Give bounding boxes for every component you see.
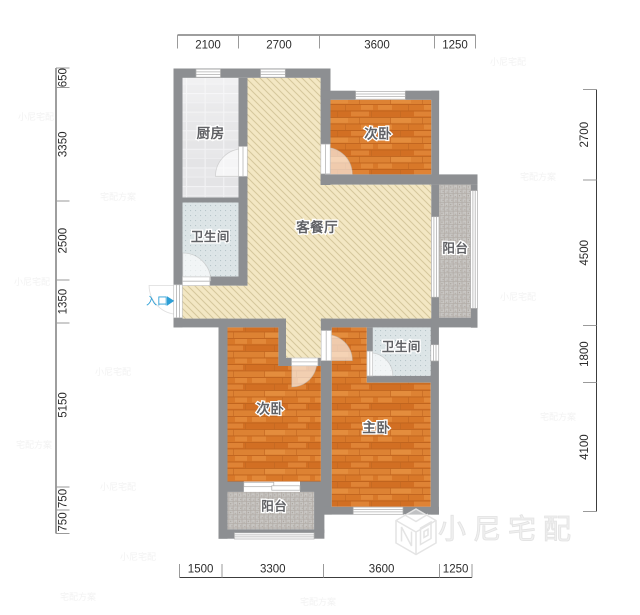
svg-text:小尼宅配: 小尼宅配 [100, 481, 136, 492]
svg-text:3300: 3300 [260, 564, 286, 576]
svg-text:2500: 2500 [58, 228, 70, 254]
svg-text:2100: 2100 [195, 40, 221, 52]
svg-text:小尼宅配: 小尼宅配 [18, 111, 54, 122]
svg-text:3600: 3600 [364, 40, 390, 52]
svg-text:宅配方案: 宅配方案 [300, 596, 336, 607]
svg-text:3350: 3350 [58, 132, 70, 158]
svg-text:小尼宅配: 小尼宅配 [438, 514, 578, 545]
svg-text:宅配方案: 宅配方案 [520, 171, 556, 182]
svg-text:卫生间: 卫生间 [382, 339, 421, 354]
svg-text:宅配方案: 宅配方案 [60, 591, 96, 602]
svg-text:入口: 入口 [146, 296, 168, 308]
svg-text:阳台: 阳台 [442, 240, 468, 255]
svg-text:厨房: 厨房 [197, 125, 225, 141]
svg-text:1250: 1250 [442, 40, 468, 52]
svg-text:5150: 5150 [58, 392, 70, 418]
svg-text:4100: 4100 [579, 434, 591, 460]
svg-text:宅配方案: 宅配方案 [100, 191, 136, 202]
svg-text:小尼宅配: 小尼宅配 [14, 276, 50, 287]
svg-text:3600: 3600 [369, 564, 395, 576]
svg-text:1500: 1500 [188, 564, 214, 576]
svg-text:1250: 1250 [443, 564, 469, 576]
svg-text:750: 750 [58, 512, 70, 531]
svg-text:1350: 1350 [58, 289, 70, 315]
svg-text:宅配方案: 宅配方案 [540, 411, 576, 422]
svg-text:阳台: 阳台 [261, 499, 287, 514]
svg-text:次卧: 次卧 [364, 125, 392, 141]
svg-text:小尼宅配: 小尼宅配 [95, 366, 131, 377]
svg-text:650: 650 [58, 68, 70, 87]
svg-text:小尼宅配: 小尼宅配 [490, 56, 526, 67]
svg-text:主卧: 主卧 [362, 420, 390, 436]
svg-text:卫生间: 卫生间 [191, 229, 230, 244]
svg-text:750: 750 [58, 489, 70, 508]
svg-text:1800: 1800 [579, 341, 591, 367]
svg-text:2700: 2700 [579, 122, 591, 148]
svg-text:客餐厅: 客餐厅 [295, 219, 338, 235]
svg-text:次卧: 次卧 [256, 401, 284, 417]
svg-text:小尼宅配: 小尼宅配 [500, 291, 536, 302]
svg-text:4500: 4500 [579, 240, 591, 266]
svg-text:宅配方案: 宅配方案 [16, 439, 52, 450]
svg-text:小尼宅配: 小尼宅配 [120, 551, 156, 562]
svg-text:2700: 2700 [266, 40, 292, 52]
